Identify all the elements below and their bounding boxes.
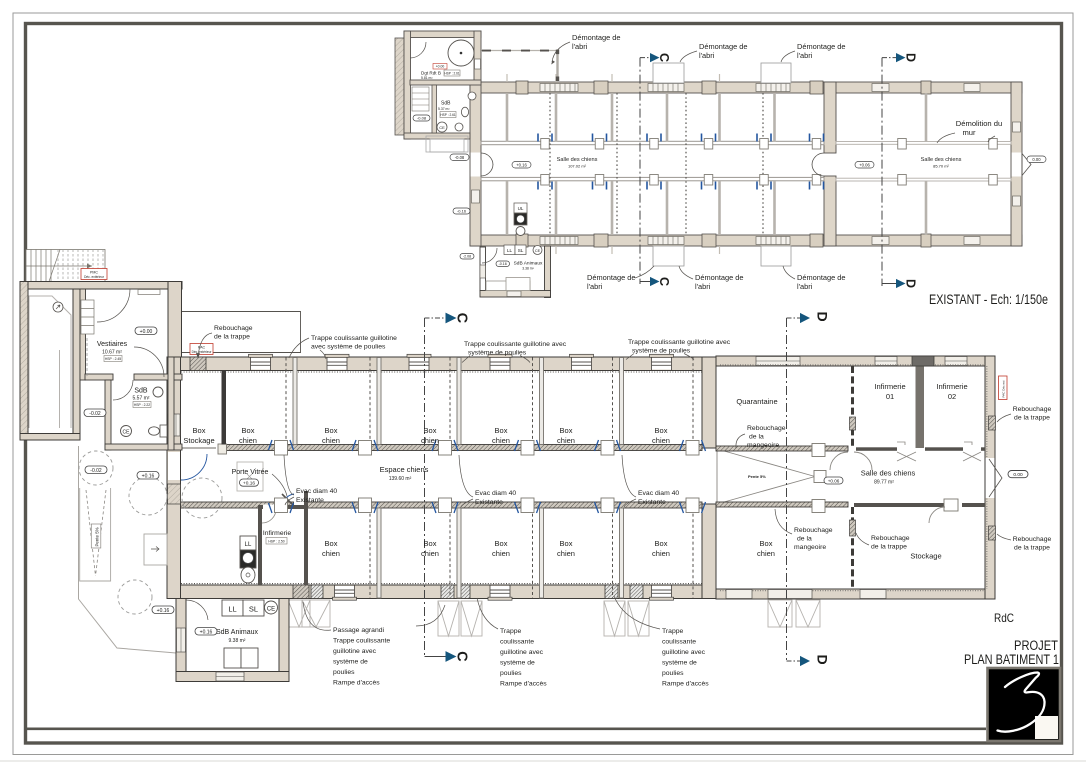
svg-text:Infirmerie: Infirmerie	[263, 530, 292, 537]
svg-text:-2.08: -2.08	[463, 255, 471, 259]
svg-text:+0.06: +0.06	[828, 478, 840, 483]
svg-text:-0.08: -0.08	[417, 116, 427, 121]
svg-text:système de: système de	[662, 660, 697, 667]
svg-text:PLAN BATIMENT 1: PLAN BATIMENT 1	[964, 652, 1059, 667]
svg-text:Box: Box	[424, 539, 437, 548]
svg-text:SdB Animaux: SdB Animaux	[216, 629, 259, 636]
svg-text:Rampe d'accès: Rampe d'accès	[662, 681, 709, 688]
svg-text:poulies: poulies	[662, 670, 684, 677]
svg-text:+0.16: +0.16	[200, 629, 213, 635]
svg-text:Box: Box	[655, 539, 668, 548]
svg-text:Salle des chiens: Salle des chiens	[921, 157, 962, 163]
svg-text:Trappe coulissante guillotine: Trappe coulissante guillotine	[311, 335, 397, 342]
svg-text:Dgt Rdt B: Dgt Rdt B	[421, 71, 441, 76]
svg-text:chien: chien	[322, 436, 340, 445]
svg-text:mangeoire: mangeoire	[747, 442, 779, 449]
svg-text:C: C	[657, 53, 671, 62]
svg-text:Evac diam 40: Evac diam 40	[638, 490, 679, 497]
svg-text:système de: système de	[500, 660, 535, 667]
svg-text:avec système de poulies: avec système de poulies	[311, 344, 386, 351]
svg-text:89.77 m²: 89.77 m²	[874, 480, 894, 486]
svg-text:Démolition du: Démolition du	[956, 119, 1002, 128]
svg-text:-0.02: -0.02	[89, 411, 101, 417]
svg-text:SdB: SdB	[134, 388, 148, 395]
svg-text:5.57 m²: 5.57 m²	[133, 396, 150, 402]
svg-text:Porte Vitrée: Porte Vitrée	[232, 469, 269, 476]
svg-text:0.00: 0.00	[1032, 157, 1041, 162]
svg-text:chien: chien	[421, 436, 439, 445]
svg-text:+0.00: +0.00	[140, 329, 153, 335]
svg-text:l'abri: l'abri	[699, 51, 715, 60]
svg-text:de la: de la	[749, 434, 764, 441]
svg-text:Evac diam 40: Evac diam 40	[475, 490, 516, 497]
svg-text:HSP : 2.61: HSP : 2.61	[440, 113, 456, 117]
svg-text:chien: chien	[421, 549, 439, 558]
svg-text:Box: Box	[655, 426, 668, 435]
svg-text:l'abri: l'abri	[695, 282, 711, 291]
svg-text:Pente 5%: Pente 5%	[95, 527, 100, 546]
svg-text:chien: chien	[322, 549, 340, 558]
svg-text:5.81 m²: 5.81 m²	[421, 76, 433, 80]
svg-text:D: D	[815, 312, 831, 322]
svg-text:Box: Box	[560, 539, 573, 548]
svg-text:système de poulies: système de poulies	[632, 348, 691, 355]
svg-text:CE: CE	[123, 430, 131, 436]
svg-text:D: D	[904, 53, 918, 62]
svg-text:système de poulies: système de poulies	[468, 350, 527, 357]
svg-text:CE: CE	[267, 607, 275, 613]
svg-text:Rebouchage: Rebouchage	[794, 527, 833, 534]
svg-text:Salle des chiens: Salle des chiens	[861, 469, 916, 478]
svg-text:0.00: 0.00	[1013, 472, 1023, 478]
svg-text:Espace chiens: Espace chiens	[380, 465, 429, 474]
svg-text:PROJET: PROJET	[1014, 638, 1058, 653]
svg-text:l'abri: l'abri	[572, 42, 588, 51]
svg-text:+0.06: +0.06	[859, 163, 870, 168]
svg-text:mur: mur	[962, 128, 976, 137]
svg-text:Démontage de: Démontage de	[572, 33, 620, 42]
svg-text:Trappe: Trappe	[662, 628, 684, 635]
svg-text:+0.16: +0.16	[243, 481, 255, 487]
svg-text:chien: chien	[557, 436, 575, 445]
svg-text:Trappe: Trappe	[500, 628, 522, 635]
svg-text:chien: chien	[557, 549, 575, 558]
svg-text:de la trappe: de la trappe	[1014, 545, 1050, 552]
svg-text:107.02 m²: 107.02 m²	[568, 164, 587, 169]
svg-text:02: 02	[948, 392, 956, 401]
svg-text:chien: chien	[492, 436, 510, 445]
svg-text:HSP : 2.22: HSP : 2.22	[134, 403, 150, 407]
svg-text:LL: LL	[245, 542, 252, 548]
svg-text:Rampe d'accès: Rampe d'accès	[333, 680, 380, 687]
svg-text:Trappe coulissante: Trappe coulissante	[333, 638, 390, 645]
svg-text:HSP : 2.50: HSP : 2.50	[268, 540, 284, 544]
svg-text:+0.16: +0.16	[157, 608, 170, 614]
svg-text:139.60 m²: 139.60 m²	[389, 476, 412, 482]
svg-text:Existante: Existante	[638, 499, 666, 506]
svg-text:de la trappe: de la trappe	[871, 544, 907, 551]
svg-text:Box: Box	[495, 539, 508, 548]
svg-text:D: D	[815, 655, 831, 665]
svg-text:coulissante: coulissante	[500, 639, 534, 646]
svg-text:Trappe coulissante guillotine: Trappe coulissante guillotine avec	[464, 341, 567, 348]
svg-text:LL: LL	[507, 248, 513, 253]
svg-text:Existante: Existante	[296, 497, 324, 504]
svg-text:85.70 m²: 85.70 m²	[933, 164, 949, 169]
svg-text:Stockage: Stockage	[183, 436, 214, 445]
svg-text:Box: Box	[325, 426, 338, 435]
svg-text:C: C	[454, 313, 470, 324]
svg-text:Box: Box	[760, 539, 773, 548]
svg-text:CE: CE	[439, 125, 445, 130]
svg-text:Passage agrandi: Passage agrandi	[333, 627, 385, 634]
svg-text:guillotine avec: guillotine avec	[333, 648, 377, 655]
svg-text:10.67 m²: 10.67 m²	[102, 350, 122, 356]
svg-text:Rebouchage: Rebouchage	[214, 325, 253, 332]
svg-text:Infirmerie: Infirmerie	[936, 382, 967, 391]
svg-text:EXISTANT - Ech: 1/150e: EXISTANT - Ech: 1/150e	[929, 292, 1048, 307]
svg-text:9.38 m²: 9.38 m²	[229, 638, 246, 644]
svg-text:Déc. extérieur: Déc. extérieur	[84, 275, 105, 279]
svg-text:C: C	[657, 277, 671, 286]
svg-text:CE: CE	[535, 249, 541, 253]
svg-text:RdC: RdC	[994, 611, 1014, 625]
svg-text:Démontage de: Démontage de	[695, 273, 743, 282]
svg-text:Box: Box	[193, 426, 206, 435]
svg-text:Démontage de: Démontage de	[699, 42, 747, 51]
svg-text:poulies: poulies	[500, 670, 522, 677]
svg-text:01: 01	[886, 392, 894, 401]
svg-text:PMC: PMC	[90, 271, 98, 275]
svg-text:Trappe coulissante guillotine: Trappe coulissante guillotine avec	[628, 339, 731, 346]
svg-text:Déc. extérieur: Déc. extérieur	[192, 350, 213, 354]
svg-text:LL: LL	[228, 605, 236, 614]
svg-text:chien: chien	[239, 436, 257, 445]
svg-text:+0.16: +0.16	[142, 473, 155, 479]
svg-text:de la trappe: de la trappe	[1014, 415, 1050, 422]
svg-text:+0.16: +0.16	[516, 163, 527, 168]
svg-text:-0.16: -0.16	[499, 262, 507, 266]
svg-text:Salle des chiens: Salle des chiens	[557, 157, 598, 163]
svg-text:-0.02: -0.02	[90, 468, 102, 474]
svg-text:chien: chien	[492, 549, 510, 558]
svg-text:Box: Box	[560, 426, 573, 435]
svg-text:poulies: poulies	[333, 669, 355, 676]
svg-text:guillotine avec: guillotine avec	[662, 649, 706, 656]
svg-text:Existante: Existante	[475, 499, 503, 506]
svg-text:système de: système de	[333, 659, 368, 666]
svg-text:-0.16: -0.16	[457, 209, 467, 214]
svg-text:SL: SL	[518, 248, 524, 253]
svg-text:Démontage de: Démontage de	[797, 273, 845, 282]
svg-text:Démontage de: Démontage de	[797, 42, 845, 51]
svg-text:Rebouchage: Rebouchage	[747, 425, 786, 432]
svg-text:l'abri: l'abri	[587, 282, 603, 291]
svg-text:coulissante: coulissante	[662, 639, 696, 646]
svg-text:chien: chien	[757, 549, 775, 558]
svg-text:C: C	[454, 651, 470, 662]
svg-text:Infirmerie: Infirmerie	[874, 382, 905, 391]
svg-text:Box: Box	[424, 426, 437, 435]
svg-text:Box: Box	[242, 426, 255, 435]
svg-text:de la: de la	[797, 536, 812, 543]
svg-text:-0.08: -0.08	[455, 155, 465, 160]
svg-text:chien: chien	[652, 549, 670, 558]
svg-text:UL: UL	[518, 206, 524, 211]
svg-text:Box: Box	[325, 539, 338, 548]
svg-text:Evac diam 40: Evac diam 40	[296, 488, 337, 495]
svg-text:chien: chien	[652, 436, 670, 445]
svg-text:+0.00: +0.00	[436, 65, 445, 69]
svg-text:SdB: SdB	[441, 101, 451, 107]
svg-text:Rebouchage: Rebouchage	[1013, 406, 1052, 413]
svg-text:PAC Déc ext: PAC Déc ext	[1002, 380, 1006, 397]
svg-text:D: D	[904, 279, 918, 288]
svg-text:Pente 5%: Pente 5%	[748, 474, 766, 479]
svg-text:SL: SL	[249, 605, 258, 614]
svg-text:l'abri: l'abri	[797, 51, 813, 60]
svg-text:Démontage de: Démontage de	[587, 273, 635, 282]
svg-text:Stockage: Stockage	[910, 552, 941, 561]
svg-text:5.37 m²: 5.37 m²	[438, 107, 450, 111]
svg-text:Vestiaires: Vestiaires	[97, 341, 128, 348]
svg-text:mangeoire: mangeoire	[794, 544, 826, 551]
svg-text:Quarantaine: Quarantaine	[736, 397, 777, 406]
svg-text:Rebouchage: Rebouchage	[871, 535, 910, 542]
svg-text:guillotine avec: guillotine avec	[500, 649, 544, 656]
svg-text:Rampe d'accès: Rampe d'accès	[500, 681, 547, 688]
svg-text:Box: Box	[495, 426, 508, 435]
svg-text:3.38 m²: 3.38 m²	[522, 267, 534, 271]
svg-text:l'abri: l'abri	[797, 282, 813, 291]
svg-text:HSP : 2.61: HSP : 2.61	[444, 72, 460, 76]
svg-text:de la trappe: de la trappe	[214, 334, 250, 341]
svg-text:Rebouchage: Rebouchage	[1013, 536, 1052, 543]
svg-text:HSP : 2.45: HSP : 2.45	[105, 357, 121, 361]
